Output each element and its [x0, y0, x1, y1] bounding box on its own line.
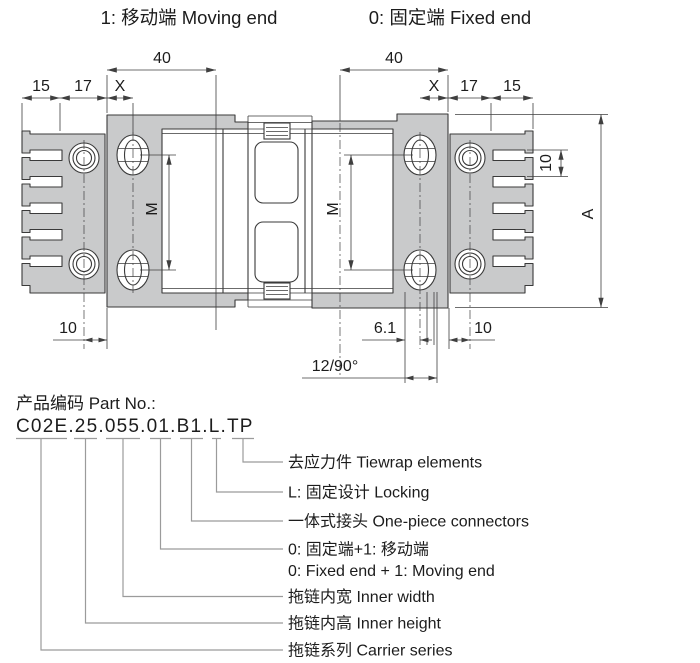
dim-label-overall-height: A [580, 208, 597, 219]
legend-label-inner-height: 拖链内高 Inner height [288, 615, 442, 633]
dim-label-right-17: 17 [460, 78, 478, 95]
dim-label-m-right: M [325, 202, 342, 215]
link-opening-bottom [255, 222, 298, 282]
dim-label-link-pitch: 12/90° [312, 358, 358, 375]
legend-label-ends-zh: 0: 固定端+1: 移动端 [288, 541, 429, 559]
dim-label-right-x: X [429, 78, 440, 95]
dim-label-left-15: 15 [32, 78, 50, 95]
dim-label-tooth-pitch: 10 [538, 154, 555, 172]
dim-label-bottom-right-10: 10 [474, 320, 492, 337]
dim-label-bottom-left-10: 10 [59, 320, 77, 337]
dim-label-bottom-gap: 6.1 [374, 320, 396, 337]
title-fixed-end: 0: 固定端 Fixed end [369, 7, 531, 28]
datasheet-page: 1: 移动端 Moving end 0: 固定端 Fixed end 40 40… [0, 0, 700, 663]
latch-top [264, 123, 290, 139]
legend-label-tiewrap: 去应力件 Tiewrap elements [288, 453, 482, 472]
chain-link [162, 116, 393, 307]
technical-drawing: 1: 移动端 Moving end 0: 固定端 Fixed end 40 40… [0, 0, 700, 663]
latch-bottom [264, 283, 290, 299]
dim-label-fixed-span: 40 [385, 50, 403, 67]
legend-leader-lines [41, 439, 283, 651]
dim-label-left-17: 17 [74, 78, 92, 95]
part-code: C02E.25.055.01.B1.L.TP [16, 416, 254, 437]
title-moving-end: 1: 移动端 Moving end [101, 7, 278, 28]
dim-label-moving-span: 40 [153, 50, 171, 67]
dim-label-m-left: M [144, 202, 161, 215]
legend-label-ends-en: 0: Fixed end + 1: Moving end [288, 563, 495, 580]
legend-label-inner-width: 拖链内宽 Inner width [288, 588, 435, 606]
link-opening-top [255, 142, 298, 203]
dim-label-left-x: X [115, 78, 126, 95]
legend-label-connectors: 一体式接头 One-piece connectors [288, 513, 529, 531]
legend-label-locking: L: 固定设计 Locking [288, 484, 429, 502]
part-number-heading: 产品编码 Part No.: [16, 394, 156, 413]
legend-label-carrier-series: 拖链系列 Carrier series [288, 642, 452, 660]
dim-label-right-15: 15 [503, 78, 521, 95]
